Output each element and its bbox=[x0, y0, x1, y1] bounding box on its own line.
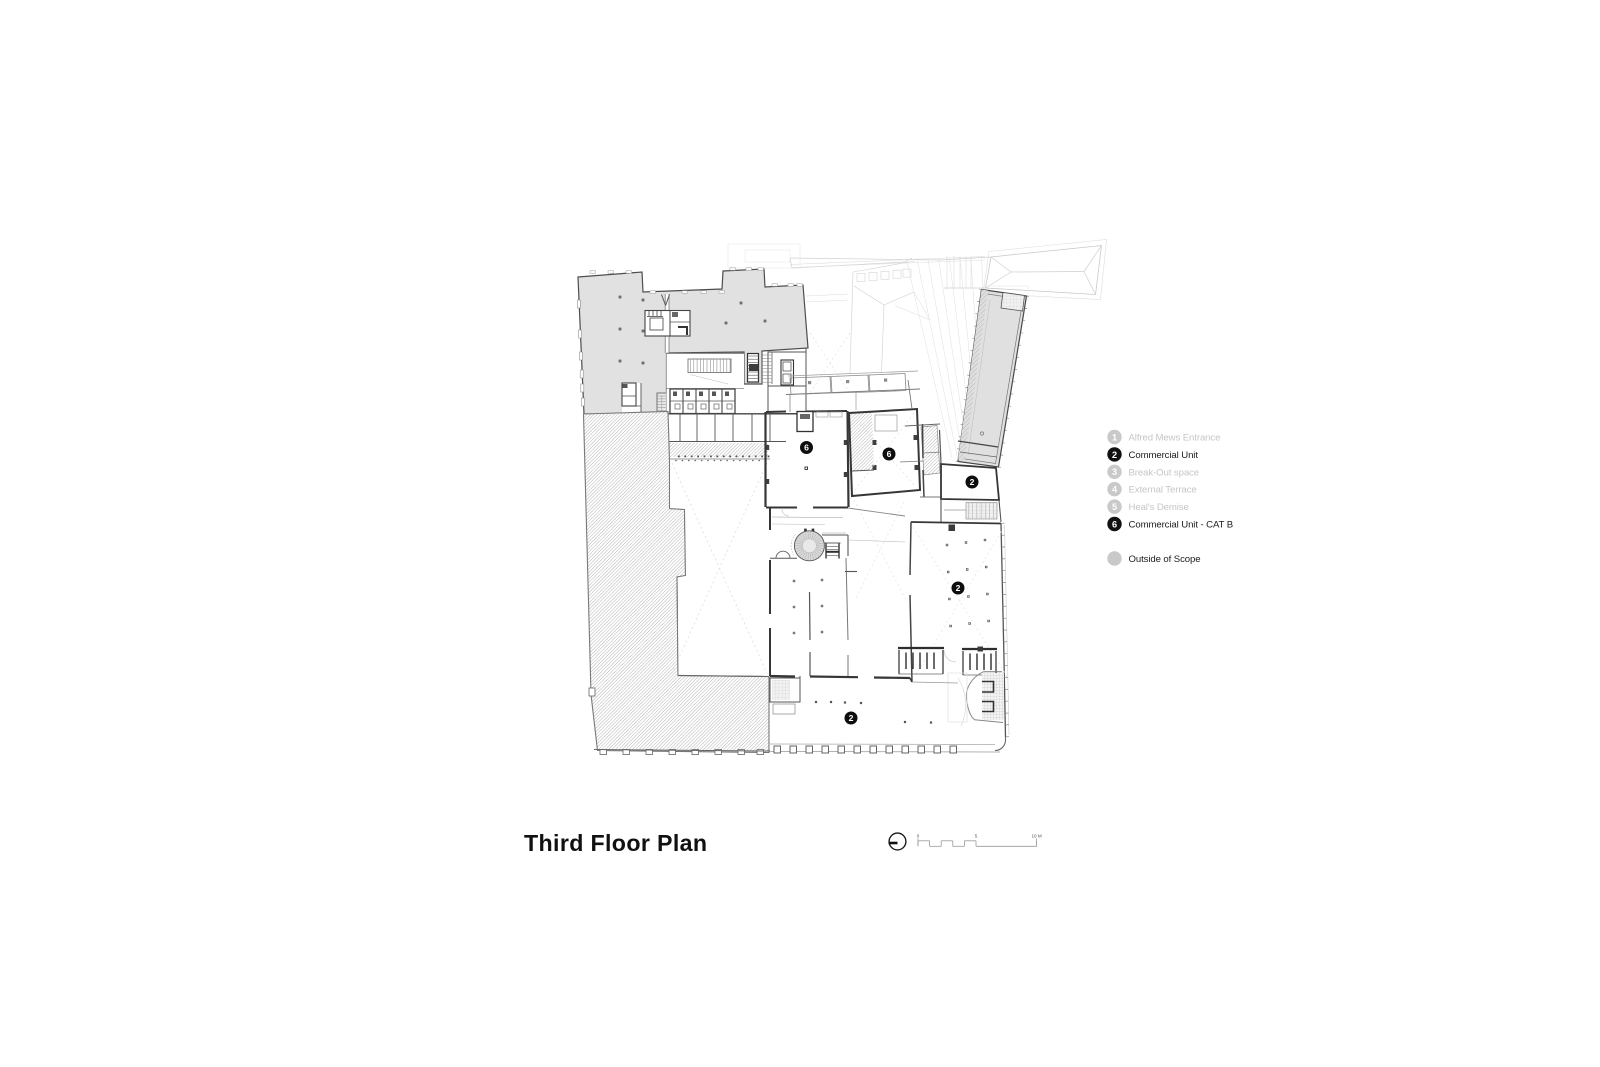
svg-text:Outside of Scope: Outside of Scope bbox=[1129, 554, 1201, 565]
svg-text:6: 6 bbox=[804, 443, 809, 453]
svg-text:1: 1 bbox=[1112, 432, 1117, 442]
svg-text:4: 4 bbox=[1112, 485, 1118, 495]
svg-text:5: 5 bbox=[975, 834, 978, 839]
svg-text:Break-Out space: Break-Out space bbox=[1129, 467, 1200, 478]
svg-text:10 M: 10 M bbox=[1031, 834, 1041, 839]
svg-text:Heal's Demise: Heal's Demise bbox=[1129, 502, 1189, 513]
svg-text:Commercial Unit - CAT B: Commercial Unit - CAT B bbox=[1129, 520, 1234, 531]
svg-text:0: 0 bbox=[917, 834, 920, 839]
svg-text:2: 2 bbox=[956, 583, 961, 593]
svg-text:6: 6 bbox=[887, 449, 892, 459]
svg-text:External Terrace: External Terrace bbox=[1129, 485, 1197, 496]
svg-text:Alfred Mews Entrance: Alfred Mews Entrance bbox=[1129, 433, 1221, 444]
svg-text:Commercial Unit: Commercial Unit bbox=[1129, 450, 1199, 461]
svg-text:6: 6 bbox=[1112, 519, 1117, 529]
svg-text:2: 2 bbox=[970, 477, 975, 487]
svg-text:5: 5 bbox=[1112, 502, 1117, 512]
svg-text:2: 2 bbox=[1112, 450, 1117, 460]
svg-text:2: 2 bbox=[849, 713, 854, 723]
svg-text:3: 3 bbox=[1112, 467, 1117, 477]
